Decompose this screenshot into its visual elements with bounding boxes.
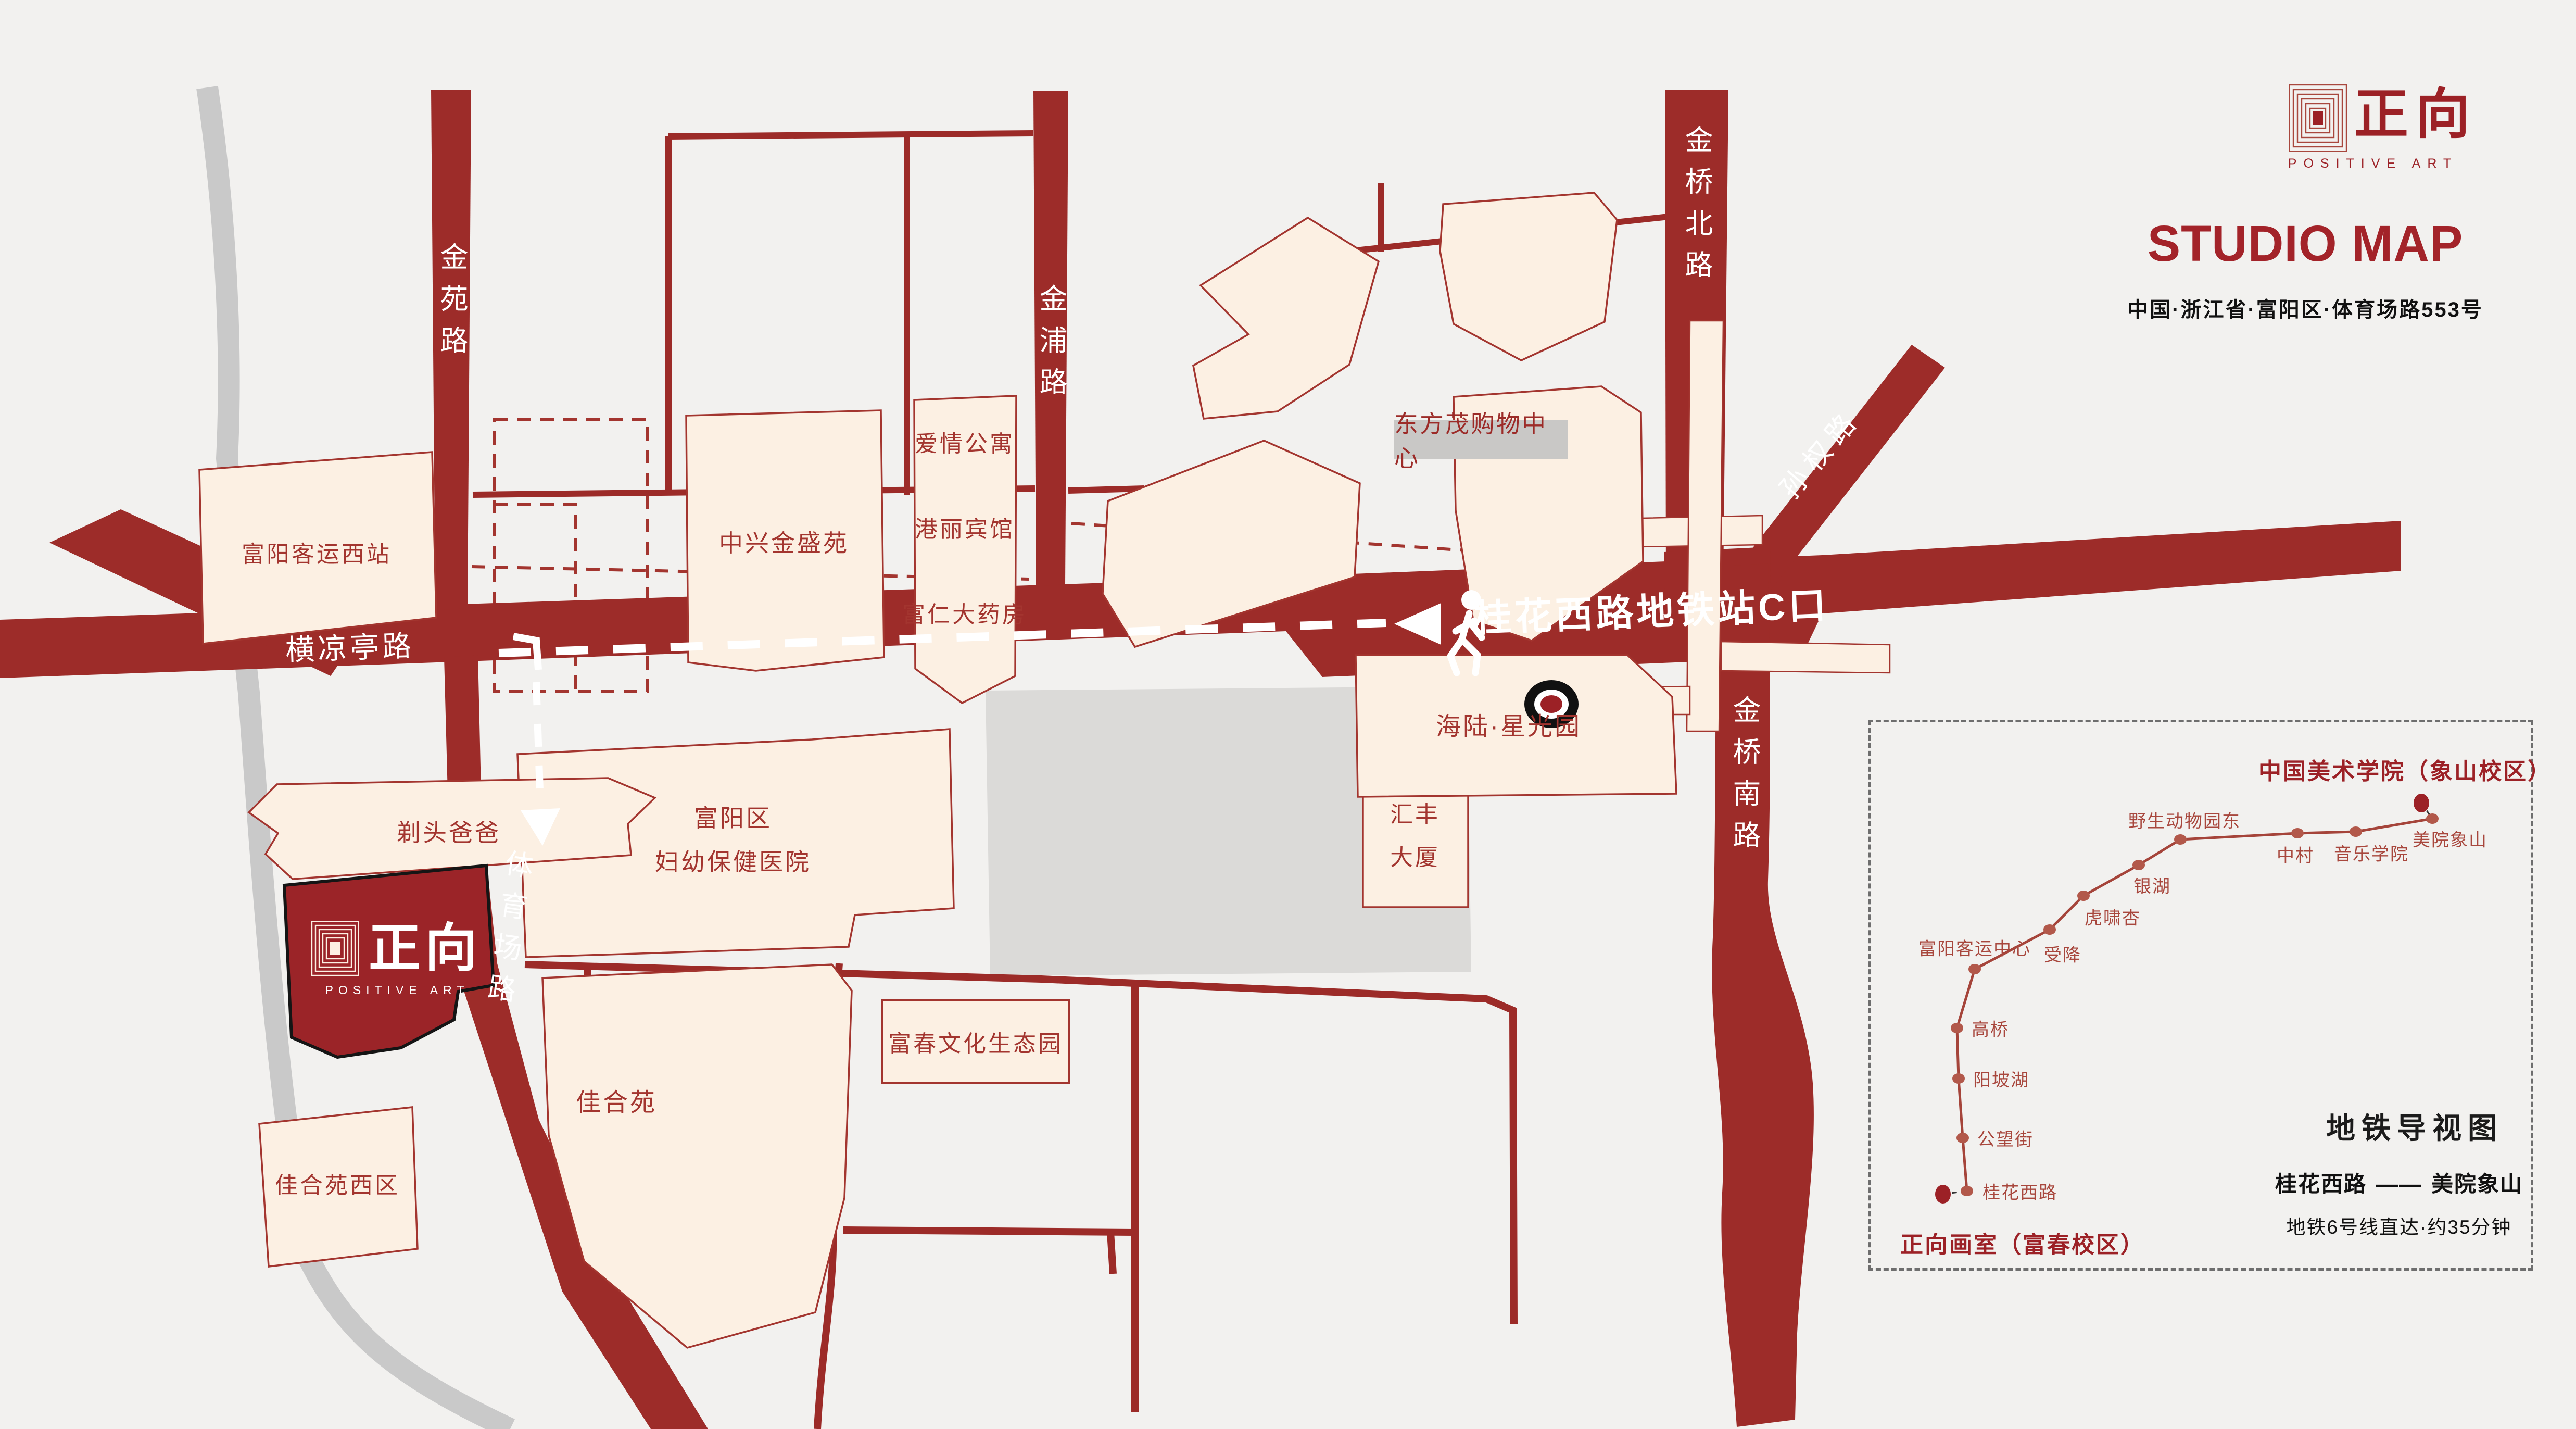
road-label-jinyuan: 金苑路 <box>437 242 465 367</box>
label-gangli: 港丽宾馆 <box>915 510 1015 544</box>
station-label: 美院象山 <box>2413 826 2487 851</box>
station-dot <box>2174 834 2187 845</box>
station-label: 富阳客运中心 <box>1918 935 2031 960</box>
station-label: 音乐学院 <box>2334 840 2409 866</box>
label-fuyang-west-station: 富阳客运西站 <box>242 535 392 569</box>
station-dot <box>1952 1073 1965 1084</box>
studio-address: 中国·浙江省·富阳区·体育场路553号 <box>2097 293 2514 323</box>
station-dot <box>1956 1133 1969 1143</box>
label-hailu: 海陆·星光园 <box>1436 706 1582 742</box>
station-label: 高桥 <box>1972 1016 2009 1041</box>
label-aiqing: 爱情公寓 <box>915 425 1015 458</box>
station-dot <box>1951 1023 1963 1033</box>
road-label-jinqiao-north: 金桥北路 <box>1682 125 1710 292</box>
station-label: 虎啸杏 <box>2085 904 2141 930</box>
station-dot <box>1968 964 1981 974</box>
road-label-jinpu: 金浦路 <box>1037 284 1065 409</box>
studio-logo-cn: 正向 <box>369 922 481 974</box>
station-label: 野生动物园东 <box>2128 807 2241 833</box>
route-to: 美院象山 <box>2431 1172 2523 1196</box>
buildings <box>199 193 1676 1348</box>
station-label: 受降 <box>2044 941 2081 967</box>
road-label-jinqiao-south: 金桥南路 <box>1730 695 1758 862</box>
label-fuchun-eco: 富春文化生态园 <box>881 999 1070 1084</box>
route-from: 桂花西路 <box>2275 1172 2367 1196</box>
label-dongfangmao: 东方茂购物中心 <box>1394 420 1568 459</box>
station-dot <box>2291 828 2304 838</box>
station-dot <box>2350 826 2362 837</box>
label-zhongxing: 中兴金盛苑 <box>719 524 849 559</box>
building-dongfangmao-a <box>1193 218 1379 419</box>
label-jiaheyuan: 佳合苑 <box>576 1082 657 1118</box>
label-jiaheyuan-west: 佳合苑西区 <box>275 1167 400 1200</box>
label-huifeng-line1: 汇丰 <box>1390 796 1440 829</box>
station-label: 中村 <box>2277 842 2314 867</box>
label-huifeng-line2: 大厦 <box>1390 838 1440 872</box>
station-dot <box>2426 813 2439 824</box>
metro-terminal-label: 正向画室（富春校区） <box>1900 1226 2145 1259</box>
station-label: 银湖 <box>2133 872 2171 898</box>
brand-name-en: POSITIVE ART <box>2284 156 2461 171</box>
road-jinqiao-south <box>1712 563 1814 1427</box>
label-hospital-line1: 富阳区 <box>694 799 772 834</box>
road-label-hengliangting: 横凉亭路 <box>285 622 415 669</box>
route-dash: —— <box>2376 1172 2422 1196</box>
brand-logo-icon <box>2289 84 2347 152</box>
building-dongfangmao-c <box>1440 193 1617 360</box>
terminal-dot <box>2414 794 2429 812</box>
metro-terminal-label: 中国美术学院（象山校区） <box>2258 753 2552 786</box>
metro-line-info: 地铁6号线直达·约35分钟 <box>2269 1211 2529 1239</box>
station-dot <box>2043 924 2056 935</box>
station-dot <box>2077 891 2090 901</box>
metro-panel-title: 地铁导视图 <box>2295 1105 2534 1147</box>
terminal-dot <box>1935 1185 1951 1204</box>
studio-logo-en: POSITIVE ART <box>311 983 483 997</box>
label-hospital-line2: 妇幼保健医院 <box>655 843 811 878</box>
metro-route-endpoints: 桂花西路——美院象山 <box>2269 1167 2529 1198</box>
station-dot <box>2132 860 2145 870</box>
label-titou: 剃头爸爸 <box>397 814 501 848</box>
studio-logo-icon <box>311 921 359 976</box>
label-furen: 富仁大药房 <box>902 596 1027 629</box>
studio-logo: 正向 POSITIVE ART <box>311 921 483 997</box>
studio-map-poster: 横凉亭路 桂花西路地铁站C口 金苑路 金浦路 金桥北路 体育场路 金桥南路 孙权… <box>0 0 2576 1429</box>
page-title: STUDIO MAP <box>2101 215 2509 273</box>
station-label: 阳坡湖 <box>1973 1066 2029 1092</box>
station-dot <box>1961 1186 1973 1196</box>
station-label: 桂花西路 <box>1982 1179 2057 1204</box>
brand-name-cn: 正向 <box>2354 82 2477 147</box>
station-label: 公望街 <box>1977 1125 2034 1151</box>
